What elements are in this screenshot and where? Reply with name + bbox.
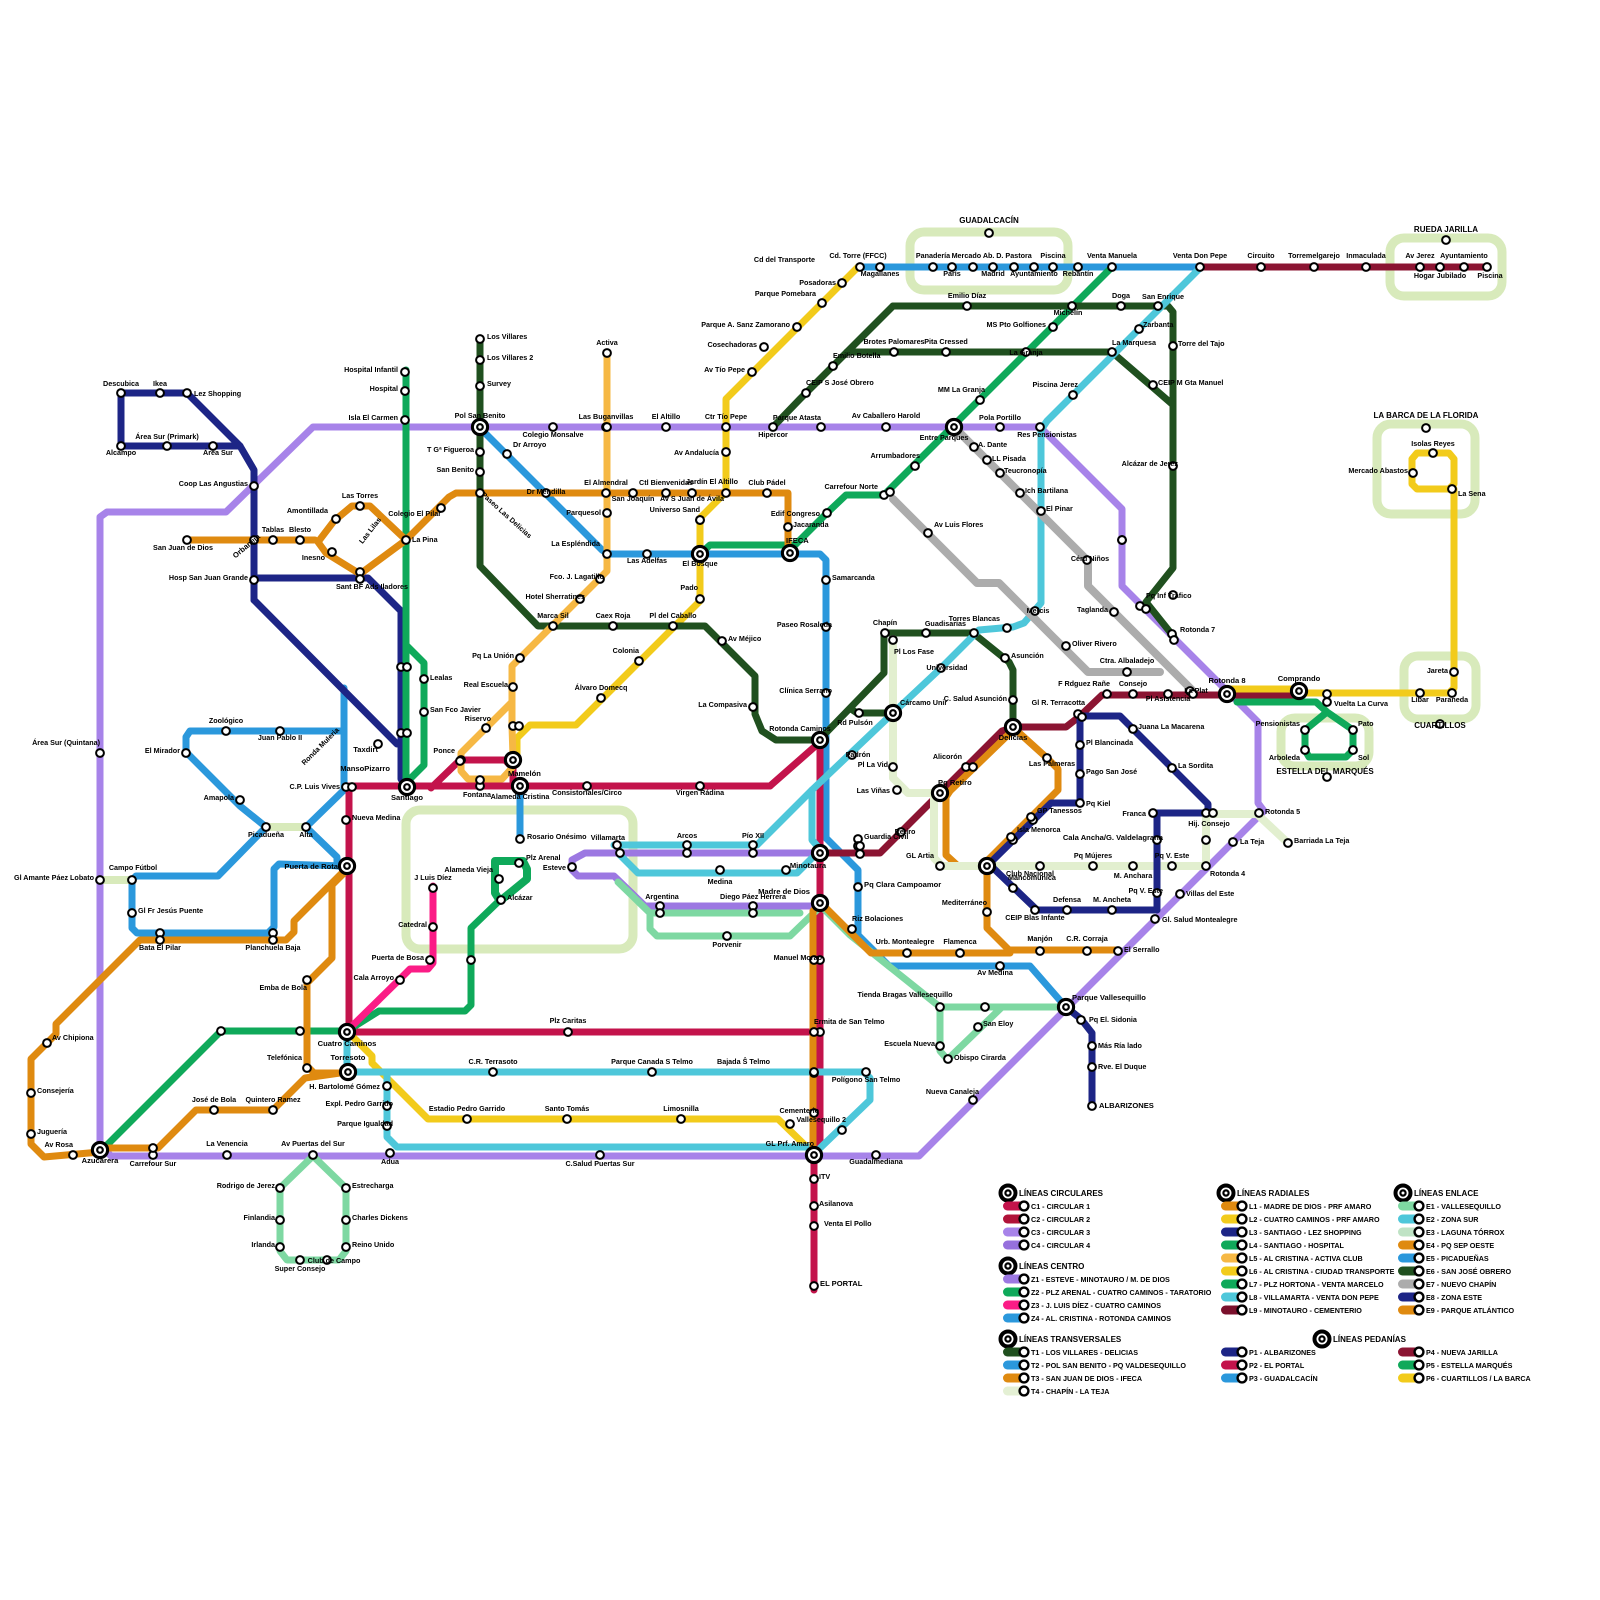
svg-text:E9 - PARQUE ATLÁNTICO: E9 - PARQUE ATLÁNTICO — [1426, 1306, 1515, 1315]
svg-text:L2 - CUATRO CAMINOS - PRF AMAR: L2 - CUATRO CAMINOS - PRF AMARO — [1249, 1215, 1380, 1224]
svg-text:Pl del Caballo: Pl del Caballo — [649, 611, 697, 620]
svg-text:GP Tanessos: GP Tanessos — [1037, 806, 1082, 815]
svg-text:P1 - ALBARIZONES: P1 - ALBARIZONES — [1249, 1348, 1316, 1357]
svg-text:Diego Páez Herrera: Diego Páez Herrera — [720, 892, 787, 901]
svg-text:El Altillo: El Altillo — [652, 412, 681, 421]
svg-text:H. Bartolomé Gómez: H. Bartolomé Gómez — [309, 1082, 380, 1091]
svg-text:Defensa: Defensa — [1053, 895, 1082, 904]
svg-text:La Pina: La Pina — [412, 535, 439, 544]
svg-text:Res Pensionistas: Res Pensionistas — [1017, 430, 1077, 439]
svg-text:Cd. Torre (FFCC): Cd. Torre (FFCC) — [829, 251, 887, 260]
svg-text:Campo Fútbol: Campo Fútbol — [109, 863, 157, 872]
svg-text:Cérd Niños: Cérd Niños — [1071, 554, 1109, 563]
svg-text:Taxdirt: Taxdirt — [353, 745, 378, 754]
svg-text:Santiago: Santiago — [391, 793, 423, 802]
svg-text:Vuelta La Curva: Vuelta La Curva — [1334, 699, 1389, 708]
svg-text:Caex Roja: Caex Roja — [596, 611, 632, 620]
svg-text:San Juan de Dios: San Juan de Dios — [153, 543, 213, 552]
svg-text:Universo Sand: Universo Sand — [650, 505, 700, 514]
svg-text:CEIP M Gta Manuel: CEIP M Gta Manuel — [1158, 378, 1223, 387]
svg-text:E2 - ZONA SUR: E2 - ZONA SUR — [1426, 1215, 1479, 1224]
svg-text:Brotes Palomares: Brotes Palomares — [863, 337, 924, 346]
svg-text:Polígono San Telmo: Polígono San Telmo — [832, 1075, 901, 1084]
svg-text:Clínica Serrano: Clínica Serrano — [779, 686, 832, 695]
svg-text:M. Anchara: M. Anchara — [1114, 871, 1153, 880]
svg-text:Pq V. Este: Pq V. Este — [1155, 851, 1190, 860]
svg-text:Hospital Infantil: Hospital Infantil — [344, 365, 398, 374]
svg-text:Ayuntamiento: Ayuntamiento — [1440, 251, 1488, 260]
svg-text:P2 - EL PORTAL: P2 - EL PORTAL — [1249, 1361, 1305, 1370]
svg-text:Franca: Franca — [1122, 809, 1147, 818]
svg-text:Fontana: Fontana — [463, 790, 492, 799]
svg-text:Las Torres: Las Torres — [342, 491, 378, 500]
svg-text:Zoológico: Zoológico — [209, 716, 244, 725]
svg-text:Esteve: Esteve — [543, 863, 566, 872]
svg-text:La Compasiva: La Compasiva — [698, 700, 748, 709]
svg-text:Circuito: Circuito — [1247, 251, 1275, 260]
svg-text:Ponce: Ponce — [433, 746, 455, 755]
svg-text:Alameda Vieja: Alameda Vieja — [444, 865, 494, 874]
svg-text:Pl Blancinada: Pl Blancinada — [1086, 738, 1134, 747]
svg-text:Plz Arenal: Plz Arenal — [526, 853, 560, 862]
svg-text:Consejería: Consejería — [37, 1086, 75, 1095]
svg-text:Pl Asistencia: Pl Asistencia — [1146, 694, 1191, 703]
svg-text:Líbar: Líbar — [1411, 695, 1429, 704]
svg-text:Club de Campo: Club de Campo — [308, 1256, 361, 1265]
svg-text:Descubica: Descubica — [103, 379, 140, 388]
svg-text:C2 - CIRCULAR 2: C2 - CIRCULAR 2 — [1031, 1215, 1090, 1224]
svg-text:Adua: Adua — [381, 1157, 400, 1166]
svg-text:Madrid: Madrid — [981, 269, 1005, 278]
svg-text:Fco. J. Lagatillo: Fco. J. Lagatillo — [550, 572, 605, 581]
svg-text:Ayuntamiento: Ayuntamiento — [1010, 269, 1058, 278]
svg-text:Rve. El Duque: Rve. El Duque — [1098, 1062, 1146, 1071]
svg-text:Área Sur: Área Sur — [203, 448, 233, 457]
svg-text:Venta Manuela: Venta Manuela — [1087, 251, 1138, 260]
svg-text:P4 - NUEVA JARILLA: P4 - NUEVA JARILLA — [1426, 1348, 1498, 1357]
svg-text:Carrefour Sur: Carrefour Sur — [130, 1159, 177, 1168]
svg-text:El Serrallo: El Serrallo — [1124, 945, 1160, 954]
svg-text:Chapín: Chapín — [873, 618, 897, 627]
svg-text:Pq Kiel: Pq Kiel — [1086, 799, 1110, 808]
svg-text:Juana La Macarena: Juana La Macarena — [1138, 722, 1205, 731]
svg-text:Hotel Sherratines: Hotel Sherratines — [525, 592, 585, 601]
svg-text:Catedral: Catedral — [398, 920, 427, 929]
svg-text:Pío XII: Pío XII — [742, 831, 764, 840]
svg-text:Av S Juan de Ávila: Av S Juan de Ávila — [660, 494, 725, 503]
svg-text:Av Puertas del Sur: Av Puertas del Sur — [281, 1139, 345, 1148]
svg-text:Av Medina: Av Medina — [977, 968, 1014, 977]
svg-text:Z2 - PLZ ARENAL - CUATRO CAMIN: Z2 - PLZ ARENAL - CUATRO CAMINOS - TARAT… — [1031, 1288, 1212, 1297]
svg-text:La Sordita: La Sordita — [1178, 761, 1214, 770]
svg-text:Mediterráneo: Mediterráneo — [942, 898, 988, 907]
svg-text:Venta El Pollo: Venta El Pollo — [824, 1219, 872, 1228]
svg-text:MM La Granja: MM La Granja — [938, 385, 986, 394]
svg-text:Pq La Unión: Pq La Unión — [472, 651, 514, 660]
svg-text:Asunción: Asunción — [1011, 651, 1044, 660]
svg-text:Cd del Transporte: Cd del Transporte — [754, 255, 815, 264]
svg-text:Quintero Ramez: Quintero Ramez — [245, 1095, 301, 1104]
svg-text:Av Jerez: Av Jerez — [1405, 251, 1435, 260]
svg-text:Rotonda 8: Rotonda 8 — [1208, 676, 1245, 685]
svg-text:Juan Pablo II: Juan Pablo II — [258, 733, 302, 742]
svg-text:Colegio El Pilar: Colegio El Pilar — [388, 509, 441, 518]
svg-text:Tablas: Tablas — [262, 525, 284, 534]
svg-text:Ich Bartilana: Ich Bartilana — [1025, 486, 1069, 495]
svg-text:M. Ancheta: M. Ancheta — [1093, 895, 1132, 904]
svg-text:Arboleda: Arboleda — [1269, 753, 1301, 762]
svg-text:IFECA: IFECA — [786, 536, 809, 545]
svg-text:Alta: Alta — [299, 830, 314, 839]
svg-text:L5 - AL CRISTINA - ACTIVA CLUB: L5 - AL CRISTINA - ACTIVA CLUB — [1249, 1254, 1363, 1263]
svg-text:Rotonda 7: Rotonda 7 — [1180, 625, 1215, 634]
svg-text:Retiro: Retiro — [895, 827, 916, 836]
svg-text:Cárcamo Unir: Cárcamo Unir — [900, 698, 947, 707]
svg-text:Sant BF Ads Iladores: Sant BF Ads Iladores — [336, 582, 408, 591]
svg-text:Av Méjico: Av Méjico — [728, 634, 762, 643]
svg-text:Ermita de San Telmo: Ermita de San Telmo — [814, 1017, 885, 1026]
svg-text:Club Nacional: Club Nacional — [1006, 869, 1054, 878]
svg-text:Av Tío Pepe: Av Tío Pepe — [704, 365, 745, 374]
svg-text:Piscina: Piscina — [1477, 271, 1503, 280]
svg-text:San Benito: San Benito — [436, 465, 474, 474]
svg-text:Minotaura: Minotaura — [790, 861, 827, 870]
svg-text:Av Luis Flores: Av Luis Flores — [934, 520, 983, 529]
svg-text:Paraneda: Paraneda — [1436, 695, 1469, 704]
svg-text:Riservo: Riservo — [465, 714, 492, 723]
svg-text:Parquesol: Parquesol — [566, 508, 601, 517]
svg-text:Jacaranda: Jacaranda — [793, 520, 830, 529]
svg-text:L4 - SANTIAGO - HOSPITAL: L4 - SANTIAGO - HOSPITAL — [1249, 1241, 1345, 1250]
svg-text:La Espléndida: La Espléndida — [551, 539, 601, 548]
svg-text:E5 - PICADUEÑAS: E5 - PICADUEÑAS — [1426, 1254, 1489, 1263]
svg-text:LÍNEAS ENLACE: LÍNEAS ENLACE — [1414, 1189, 1479, 1198]
svg-text:Consistoriales/Circo: Consistoriales/Circo — [552, 788, 623, 797]
svg-text:Mamelón: Mamelón — [508, 769, 541, 778]
svg-text:Activa: Activa — [596, 338, 619, 347]
svg-text:RUEDA JARILLA: RUEDA JARILLA — [1414, 225, 1478, 234]
svg-text:LÍNEAS RADIALES: LÍNEAS RADIALES — [1237, 1189, 1310, 1198]
svg-text:Universidad: Universidad — [926, 663, 967, 672]
svg-text:Expl. Pedro Garrido: Expl. Pedro Garrido — [326, 1099, 394, 1108]
svg-text:Cuatro Caminos: Cuatro Caminos — [318, 1039, 377, 1048]
svg-text:Pensionistas: Pensionistas — [1256, 719, 1300, 728]
svg-text:EL PORTAL: EL PORTAL — [820, 1279, 863, 1288]
svg-text:Urb. Montealegre: Urb. Montealegre — [876, 937, 935, 946]
svg-text:Villamarta: Villamarta — [591, 833, 626, 842]
svg-text:LÍNEAS CENTRO: LÍNEAS CENTRO — [1019, 1262, 1084, 1271]
svg-text:Estadio Pedro Garrido: Estadio Pedro Garrido — [429, 1104, 506, 1113]
svg-text:T Gª Figueroa: T Gª Figueroa — [427, 445, 475, 454]
svg-text:E6 - SAN JOSÉ OBRERO: E6 - SAN JOSÉ OBRERO — [1426, 1267, 1511, 1276]
svg-text:Ctr Tío Pepe: Ctr Tío Pepe — [705, 412, 747, 421]
svg-text:L8 - VILLAMARTA - VENTA DON PE: L8 - VILLAMARTA - VENTA DON PEPE — [1249, 1293, 1379, 1302]
svg-text:LÍNEAS CIRCULARES: LÍNEAS CIRCULARES — [1019, 1189, 1104, 1198]
svg-text:La Marquesa: La Marquesa — [1112, 338, 1157, 347]
svg-text:Riz Bolaciones: Riz Bolaciones — [852, 914, 903, 923]
svg-text:Parque Atasta: Parque Atasta — [773, 413, 822, 422]
svg-text:El Mirador: El Mirador — [145, 746, 180, 755]
svg-text:Comprando: Comprando — [1278, 674, 1321, 683]
svg-text:Plz Caritas: Plz Caritas — [550, 1016, 587, 1025]
svg-text:C.P. Luis Vives: C.P. Luis Vives — [290, 782, 340, 791]
svg-text:Pq V. Este: Pq V. Este — [1129, 886, 1164, 895]
svg-text:Parque Igualdad: Parque Igualdad — [337, 1119, 393, 1128]
svg-text:GL Prf. Amaro: GL Prf. Amaro — [766, 1139, 815, 1148]
svg-text:San Joaquín: San Joaquín — [612, 494, 655, 503]
svg-text:Pq Retiro: Pq Retiro — [938, 778, 972, 787]
svg-text:Posadoras: Posadoras — [799, 278, 836, 287]
svg-text:Área Sur (Quintana): Área Sur (Quintana) — [32, 738, 100, 747]
svg-text:Rotonda Caminos: Rotonda Caminos — [769, 724, 831, 733]
svg-text:C3 - CIRCULAR 3: C3 - CIRCULAR 3 — [1031, 1228, 1090, 1237]
svg-text:T3 - SAN JUAN DE DIOS - IFECA: T3 - SAN JUAN DE DIOS - IFECA — [1031, 1374, 1142, 1383]
svg-text:Alcázar de Jerez: Alcázar de Jerez — [1122, 459, 1179, 468]
svg-text:La Granja: La Granja — [1009, 348, 1043, 357]
svg-text:E3 - LAGUNA TÓRROX: E3 - LAGUNA TÓRROX — [1426, 1228, 1505, 1237]
svg-text:Torre del Tajo: Torre del Tajo — [1178, 339, 1225, 348]
svg-text:P3 - GUADALCACÍN: P3 - GUADALCACÍN — [1249, 1374, 1318, 1383]
svg-text:El Almendral: El Almendral — [584, 478, 628, 487]
svg-text:Nueva Medina: Nueva Medina — [352, 813, 401, 822]
svg-text:L1 - MADRE DE DIOS - PRF AMARO: L1 - MADRE DE DIOS - PRF AMARO — [1249, 1202, 1372, 1211]
svg-text:LL Pisada: LL Pisada — [992, 454, 1027, 463]
svg-text:Los Villares 2: Los Villares 2 — [487, 353, 533, 362]
svg-text:Rotonda 4: Rotonda 4 — [1210, 869, 1245, 878]
svg-text:MansoPizarro: MansoPizarro — [340, 764, 390, 773]
svg-text:Pl La Vid: Pl La Vid — [858, 760, 888, 769]
svg-text:Barriada La Teja: Barriada La Teja — [1294, 836, 1350, 845]
svg-text:Super Consejo: Super Consejo — [275, 1264, 326, 1273]
svg-text:Marca Sil: Marca Sil — [537, 611, 569, 620]
svg-text:J Luis Díez: J Luis Díez — [414, 873, 452, 882]
svg-text:Pita Cressed: Pita Cressed — [924, 337, 968, 346]
svg-text:L3 - SANTIAGO - LEZ SHOPPING: L3 - SANTIAGO - LEZ SHOPPING — [1249, 1228, 1362, 1237]
svg-text:Pl Los Fase: Pl Los Fase — [894, 647, 934, 656]
svg-text:Piscina Jerez: Piscina Jerez — [1032, 380, 1078, 389]
svg-text:ALBARIZONES: ALBARIZONES — [1099, 1101, 1154, 1110]
svg-text:Gl Fr Jesús Puente: Gl Fr Jesús Puente — [138, 906, 203, 915]
svg-text:Escuela Nueva: Escuela Nueva — [884, 1039, 936, 1048]
svg-text:Doga: Doga — [1112, 291, 1131, 300]
svg-text:Juguería: Juguería — [37, 1127, 68, 1136]
svg-text:Inmaculada: Inmaculada — [1346, 251, 1387, 260]
svg-text:C.R. Terrasoto: C.R. Terrasoto — [469, 1057, 519, 1066]
svg-text:E4 - PQ SEP OESTE: E4 - PQ SEP OESTE — [1426, 1241, 1494, 1250]
svg-text:Picadueña: Picadueña — [248, 830, 285, 839]
svg-text:P6 - CUARTILLOS / LA BARCA: P6 - CUARTILLOS / LA BARCA — [1426, 1374, 1531, 1383]
svg-text:P5 - ESTELLA MARQUÉS: P5 - ESTELLA MARQUÉS — [1426, 1361, 1513, 1370]
svg-text:Gl Amante Páez Lobato: Gl Amante Páez Lobato — [14, 873, 95, 882]
svg-text:Cala Arroyo: Cala Arroyo — [354, 973, 395, 982]
svg-text:Planchuela Baja: Planchuela Baja — [245, 943, 301, 952]
svg-text:Dr Mendilla: Dr Mendilla — [527, 487, 567, 496]
svg-text:Rosario Onésimo: Rosario Onésimo — [527, 832, 587, 841]
svg-text:Hogar Jubilado: Hogar Jubilado — [1414, 271, 1467, 280]
svg-text:Pado: Pado — [680, 583, 698, 592]
svg-text:Pq El. Sidonia: Pq El. Sidonia — [1089, 1015, 1138, 1024]
svg-text:Pola Portillo: Pola Portillo — [979, 413, 1022, 422]
svg-text:Parque A. Sanz Zamorano: Parque A. Sanz Zamorano — [701, 320, 790, 329]
svg-text:T1 - LOS VILLARES - DELICIAS: T1 - LOS VILLARES - DELICIAS — [1031, 1348, 1138, 1357]
svg-text:Las Viñas: Las Viñas — [857, 786, 890, 795]
svg-text:Club Pádel: Club Pádel — [748, 478, 785, 487]
svg-text:Alcampo: Alcampo — [106, 448, 137, 457]
svg-text:Alicorón: Alicorón — [933, 752, 962, 761]
svg-text:Las Adelfas: Las Adelfas — [627, 556, 667, 565]
svg-text:Zarbanta: Zarbanta — [1143, 320, 1174, 329]
svg-text:San Fco Javier: San Fco Javier — [430, 705, 481, 714]
svg-text:Azucarera: Azucarera — [82, 1156, 119, 1165]
svg-text:C. Salud Asunción: C. Salud Asunción — [944, 694, 1007, 703]
svg-text:José de Bola: José de Bola — [192, 1095, 237, 1104]
svg-text:Z4 - AL. CRISTINA - ROTONDA CA: Z4 - AL. CRISTINA - ROTONDA CAMINOS — [1031, 1314, 1171, 1323]
svg-text:C4 - CIRCULAR 4: C4 - CIRCULAR 4 — [1031, 1241, 1090, 1250]
svg-text:Isla El Carmen: Isla El Carmen — [348, 413, 398, 422]
svg-text:Manuel Morao: Manuel Morao — [774, 953, 823, 962]
svg-text:CUARTILLOS: CUARTILLOS — [1414, 721, 1466, 730]
svg-text:Pq Inf Tráfico: Pq Inf Tráfico — [1146, 591, 1192, 600]
svg-text:Jareta: Jareta — [1427, 666, 1449, 675]
svg-text:Ctra. Albaladejo: Ctra. Albaladejo — [1100, 656, 1155, 665]
svg-text:CEIP Blas Infante: CEIP Blas Infante — [1005, 913, 1064, 922]
svg-text:Argentina: Argentina — [645, 892, 680, 901]
svg-text:Piscina: Piscina — [1040, 251, 1066, 260]
svg-text:Pato: Pato — [1358, 719, 1374, 728]
svg-text:Amapola: Amapola — [204, 793, 235, 802]
svg-text:Rd Pulsón: Rd Pulsón — [837, 718, 873, 727]
svg-text:Ikea: Ikea — [153, 379, 168, 388]
svg-text:Survey: Survey — [487, 379, 511, 388]
svg-text:T4 - CHAPÍN - LA TEJA: T4 - CHAPÍN - LA TEJA — [1031, 1387, 1109, 1396]
svg-text:Puerta de Rota: Puerta de Rota — [284, 862, 338, 871]
svg-text:Bata El Pilar: Bata El Pilar — [139, 943, 181, 952]
svg-text:Flamenca: Flamenca — [943, 937, 977, 946]
svg-text:Pago San José: Pago San José — [1086, 767, 1137, 776]
svg-text:París: París — [943, 269, 961, 278]
svg-text:T2 - POL SAN BENITO - PQ VALDE: T2 - POL SAN BENITO - PQ VALDESEQUILLO — [1031, 1361, 1186, 1370]
svg-text:Pq Clara Campoamor: Pq Clara Campoamor — [864, 880, 941, 889]
svg-text:La Sena: La Sena — [1458, 489, 1487, 498]
svg-text:Michelín: Michelín — [1054, 308, 1083, 317]
svg-text:La Venencia: La Venencia — [206, 1139, 249, 1148]
svg-text:Guadisarias: Guadisarias — [925, 619, 966, 628]
svg-text:E1 - VALLESEQUILLO: E1 - VALLESEQUILLO — [1426, 1202, 1501, 1211]
svg-text:Inesno: Inesno — [302, 553, 326, 562]
svg-text:Virgen Rádina: Virgen Rádina — [676, 788, 725, 797]
svg-text:Lealas: Lealas — [430, 673, 452, 682]
svg-text:ITV: ITV — [819, 1172, 830, 1181]
svg-text:Jardín El Altillo: Jardín El Altillo — [686, 477, 739, 486]
svg-text:Nueva Canaleja: Nueva Canaleja — [926, 1087, 980, 1096]
svg-text:Mercis: Mercis — [1027, 606, 1050, 615]
svg-text:C.R. Corraja: C.R. Corraja — [1066, 934, 1109, 943]
svg-text:Colegio Monsalve: Colegio Monsalve — [522, 430, 583, 439]
svg-text:Álvaro Domecq: Álvaro Domecq — [575, 683, 628, 692]
svg-text:La Teja: La Teja — [1240, 837, 1265, 846]
svg-text:Rotonda 5: Rotonda 5 — [1265, 807, 1300, 816]
svg-text:LÍNEAS PEDANÍAS: LÍNEAS PEDANÍAS — [1333, 1335, 1407, 1344]
svg-text:Telefónica: Telefónica — [267, 1053, 303, 1062]
svg-text:D. Pastora: D. Pastora — [996, 251, 1033, 260]
svg-text:San Eloy: San Eloy — [983, 1019, 1013, 1028]
svg-text:Parque Pomebara: Parque Pomebara — [755, 289, 817, 298]
svg-text:Consejo: Consejo — [1119, 679, 1148, 688]
svg-text:Manjón: Manjón — [1027, 934, 1052, 943]
svg-text:Av Caballero Harold: Av Caballero Harold — [852, 411, 920, 420]
svg-text:Paseo Rosaleda: Paseo Rosaleda — [777, 620, 833, 629]
svg-text:Delicias: Delicias — [999, 733, 1028, 742]
svg-text:MS Pto Golfiones: MS Pto Golfiones — [987, 320, 1047, 329]
svg-text:Emilio Díaz: Emilio Díaz — [948, 291, 987, 300]
svg-text:Villas del Este: Villas del Este — [1186, 889, 1234, 898]
svg-text:Arrumbadores: Arrumbadores — [870, 451, 920, 460]
svg-text:E8 - ZONA ESTE: E8 - ZONA ESTE — [1426, 1293, 1482, 1302]
svg-text:GUADALCACÍN: GUADALCACÍN — [959, 216, 1019, 225]
svg-text:Real Escuela: Real Escuela — [464, 680, 509, 689]
svg-text:Asilanova: Asilanova — [819, 1199, 854, 1208]
svg-text:Parque Vallesequillo: Parque Vallesequillo — [1072, 993, 1146, 1002]
svg-text:Oliver Rivero: Oliver Rivero — [1072, 639, 1117, 648]
svg-text:Medina: Medina — [708, 877, 734, 886]
svg-text:Edif Congreso: Edif Congreso — [771, 509, 821, 518]
svg-text:Teucronopía: Teucronopía — [1004, 466, 1048, 475]
svg-text:Samarcanda: Samarcanda — [832, 573, 876, 582]
svg-text:Limosnilla: Limosnilla — [663, 1104, 700, 1113]
svg-text:Las Buganvillas: Las Buganvillas — [579, 412, 634, 421]
svg-text:Isolas Reyes: Isolas Reyes — [1411, 439, 1455, 448]
svg-text:Obispo Cirarda: Obispo Cirarda — [954, 1053, 1007, 1062]
svg-text:Cementerio: Cementerio — [779, 1106, 819, 1115]
svg-text:L7 - PLZ HORTONA - VENTA MARCE: L7 - PLZ HORTONA - VENTA MARCELO — [1249, 1280, 1384, 1289]
svg-text:Hipercor: Hipercor — [758, 430, 788, 439]
svg-text:A. Dante: A. Dante — [978, 440, 1007, 449]
svg-text:F Rdguez Rañe: F Rdguez Rañe — [1058, 679, 1110, 688]
svg-text:Sol: Sol — [1358, 753, 1369, 762]
svg-text:Panadería: Panadería — [916, 251, 951, 260]
svg-text:LÍNEAS TRANSVERSALES: LÍNEAS TRANSVERSALES — [1019, 1335, 1122, 1344]
svg-text:Pol San Benito: Pol San Benito — [455, 411, 506, 420]
svg-text:Alcázar: Alcázar — [507, 893, 533, 902]
svg-text:Puerta de Bosa: Puerta de Bosa — [372, 953, 425, 962]
svg-text:Taglanda: Taglanda — [1077, 605, 1109, 614]
svg-text:Ctl Bienvenidas: Ctl Bienvenidas — [639, 478, 693, 487]
svg-text:Los Villares: Los Villares — [487, 332, 527, 341]
svg-text:Coop Las Angustias: Coop Las Angustias — [179, 479, 248, 488]
svg-text:Las Palmeras: Las Palmeras — [1029, 759, 1075, 768]
svg-text:San Enrique: San Enrique — [1142, 292, 1184, 301]
svg-text:Z1 - ESTEVE - MINOTAURO / M. D: Z1 - ESTEVE - MINOTAURO / M. DE DIOS — [1031, 1275, 1170, 1284]
svg-text:Av Rosa: Av Rosa — [45, 1140, 74, 1149]
svg-text:Av Andalucía: Av Andalucía — [674, 448, 720, 457]
svg-text:Colonia: Colonia — [613, 646, 640, 655]
svg-text:Padrón: Padrón — [846, 750, 871, 759]
svg-text:Porvenir: Porvenir — [712, 940, 741, 949]
svg-text:El Pinar: El Pinar — [1046, 504, 1073, 513]
svg-text:Irlanda: Irlanda — [251, 1240, 276, 1249]
svg-text:CEIP S José Obrero: CEIP S José Obrero — [806, 378, 874, 387]
svg-text:Cosechadoras: Cosechadoras — [707, 340, 757, 349]
svg-text:Parque Canada S Telmo: Parque Canada S Telmo — [611, 1057, 693, 1066]
svg-text:Emba de Bola: Emba de Bola — [259, 983, 308, 992]
svg-text:Estrecharga: Estrecharga — [352, 1181, 395, 1190]
svg-text:Blesto: Blesto — [289, 525, 312, 534]
svg-text:El Bosque: El Bosque — [682, 559, 717, 568]
svg-text:Amontillada: Amontillada — [287, 506, 329, 515]
svg-text:C1 - CIRCULAR 1: C1 - CIRCULAR 1 — [1031, 1202, 1090, 1211]
svg-text:Venta Don Pepe: Venta Don Pepe — [1173, 251, 1227, 260]
svg-text:Emilio Botella: Emilio Botella — [833, 351, 882, 360]
